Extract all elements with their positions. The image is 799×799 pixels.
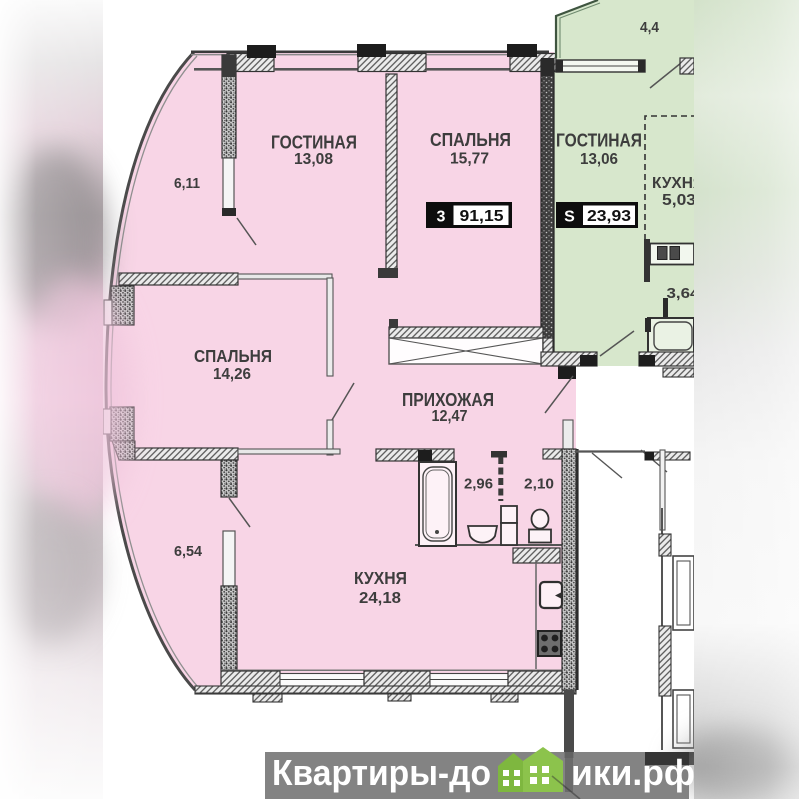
svg-text:СПАЛЬНЯ: СПАЛЬНЯ (430, 130, 511, 150)
svg-text:13,06: 13,06 (580, 151, 618, 168)
svg-text:5,03: 5,03 (662, 192, 696, 209)
svg-text:23,93: 23,93 (587, 208, 631, 225)
svg-text:S: S (564, 209, 575, 226)
svg-text:Квартиры-до: Квартиры-до (272, 752, 491, 793)
svg-text:12,47: 12,47 (432, 408, 468, 425)
svg-text:4,4: 4,4 (640, 19, 660, 36)
svg-text:3: 3 (437, 209, 446, 226)
svg-text:6,54: 6,54 (174, 544, 202, 560)
svg-text:2,96: 2,96 (464, 477, 493, 493)
svg-text:СПАЛЬНЯ: СПАЛЬНЯ (194, 346, 272, 366)
svg-text:6,11: 6,11 (174, 176, 200, 192)
svg-text:КУХНЯ: КУХНЯ (354, 568, 407, 588)
svg-text:91,15: 91,15 (460, 208, 504, 225)
svg-text:13,08: 13,08 (294, 151, 333, 168)
svg-text:24,18: 24,18 (359, 590, 401, 607)
svg-text:2,10: 2,10 (524, 477, 554, 493)
svg-text:15,77: 15,77 (450, 151, 489, 168)
svg-text:ГОСТИНАЯ: ГОСТИНАЯ (556, 131, 642, 151)
svg-text:ики.рф: ики.рф (571, 752, 695, 793)
svg-text:14,26: 14,26 (213, 366, 251, 383)
svg-text:ПРИХОЖАЯ: ПРИХОЖАЯ (402, 390, 494, 410)
svg-text:ГОСТИНАЯ: ГОСТИНАЯ (271, 133, 357, 153)
